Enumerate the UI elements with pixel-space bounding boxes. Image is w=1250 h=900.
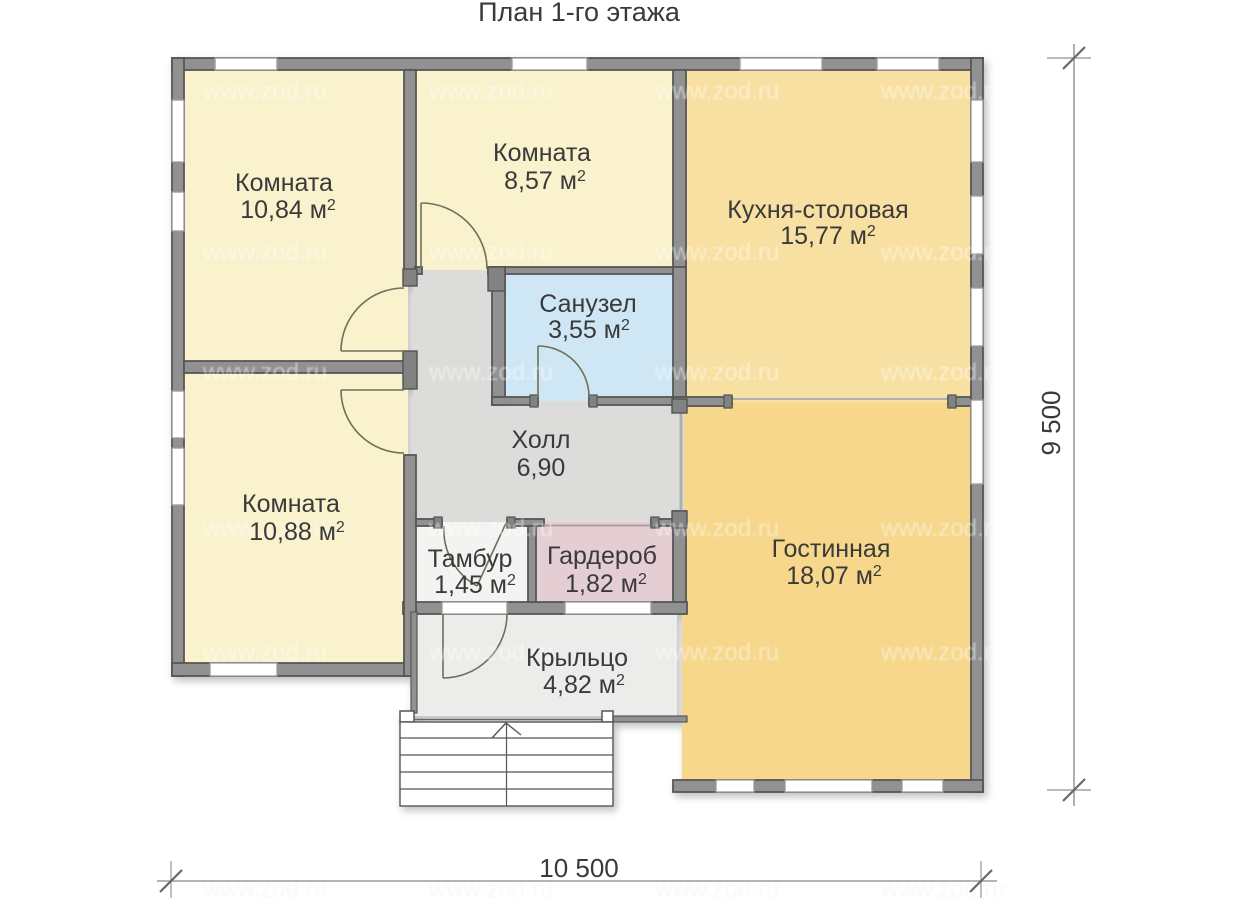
svg-text:Гостинная: Гостинная — [772, 535, 891, 563]
svg-text:www.zod.ru: www.zod.ru — [654, 639, 779, 666]
svg-text:www.zod.ru: www.zod.ru — [428, 239, 553, 266]
svg-text:9 500: 9 500 — [1036, 390, 1066, 455]
svg-text:www.zod.ru: www.zod.ru — [202, 639, 327, 666]
svg-text:www.zod.ru: www.zod.ru — [428, 78, 553, 105]
svg-text:10,84 м2: 10,84 м2 — [240, 196, 336, 224]
svg-text:Санузел: Санузел — [539, 290, 636, 318]
svg-text:www.zod.ru: www.zod.ru — [0, 78, 101, 105]
svg-text:План 1-го этажа: План 1-го этажа — [478, 0, 681, 27]
svg-text:Гардероб: Гардероб — [547, 542, 657, 570]
svg-text:Комната: Комната — [242, 490, 340, 518]
svg-text:www.zod.ru: www.zod.ru — [0, 639, 101, 666]
svg-text:3,55 м2: 3,55 м2 — [548, 316, 630, 344]
svg-text:Комната: Комната — [235, 169, 333, 197]
svg-text:15,77 м2: 15,77 м2 — [780, 222, 876, 250]
svg-text:www.zod.ru: www.zod.ru — [202, 239, 327, 266]
svg-text:www.zod.ru: www.zod.ru — [880, 639, 1005, 666]
svg-text:Тамбур: Тамбур — [428, 545, 513, 573]
svg-text:www.zod.ru: www.zod.ru — [654, 239, 779, 266]
svg-text:www.zod.ru: www.zod.ru — [1106, 359, 1231, 386]
svg-text:Холл: Холл — [512, 426, 571, 454]
svg-text:www.zod.ru: www.zod.ru — [0, 359, 101, 386]
svg-text:1,82 м2: 1,82 м2 — [565, 570, 647, 598]
svg-text:1,45 м2: 1,45 м2 — [434, 571, 516, 599]
svg-text:www.zod.ru: www.zod.ru — [880, 239, 1005, 266]
svg-text:www.zod.ru: www.zod.ru — [202, 876, 327, 900]
svg-text:www.zod.ru: www.zod.ru — [0, 239, 101, 266]
svg-text:www.zod.ru: www.zod.ru — [1106, 78, 1231, 105]
svg-text:www.zod.ru: www.zod.ru — [428, 359, 553, 386]
svg-text:www.zod.ru: www.zod.ru — [428, 876, 553, 900]
svg-text:www.zod.ru: www.zod.ru — [880, 515, 1005, 542]
svg-text:www.zod.ru: www.zod.ru — [654, 78, 779, 105]
svg-text:www.zod.ru: www.zod.ru — [202, 359, 327, 386]
svg-text:www.zod.ru: www.zod.ru — [1106, 239, 1231, 266]
svg-text:Комната: Комната — [493, 139, 591, 167]
svg-text:Кухня-столовая: Кухня-столовая — [727, 196, 908, 224]
svg-text:Крыльцо: Крыльцо — [526, 644, 628, 672]
svg-text:www.zod.ru: www.zod.ru — [654, 359, 779, 386]
svg-text:4,82 м2: 4,82 м2 — [543, 671, 625, 699]
svg-text:10 500: 10 500 — [539, 853, 619, 883]
svg-text:8,57 м2: 8,57 м2 — [504, 167, 586, 195]
svg-text:www.zod.ru: www.zod.ru — [0, 515, 101, 542]
svg-text:www.zod.ru: www.zod.ru — [1106, 515, 1231, 542]
svg-text:www.zod.ru: www.zod.ru — [654, 515, 779, 542]
svg-text:www.zod.ru: www.zod.ru — [654, 876, 779, 900]
svg-text:18,07 м2: 18,07 м2 — [786, 562, 882, 590]
svg-text:10,88 м2: 10,88 м2 — [249, 518, 345, 546]
svg-text:www.zod.ru: www.zod.ru — [428, 515, 553, 542]
svg-text:www.zod.ru: www.zod.ru — [1106, 639, 1231, 666]
svg-text:6,90: 6,90 — [517, 454, 566, 482]
svg-text:www.zod.ru: www.zod.ru — [880, 876, 1005, 900]
svg-text:www.zod.ru: www.zod.ru — [880, 359, 1005, 386]
svg-text:www.zod.ru: www.zod.ru — [880, 78, 1005, 105]
svg-text:www.zod.ru: www.zod.ru — [202, 78, 327, 105]
